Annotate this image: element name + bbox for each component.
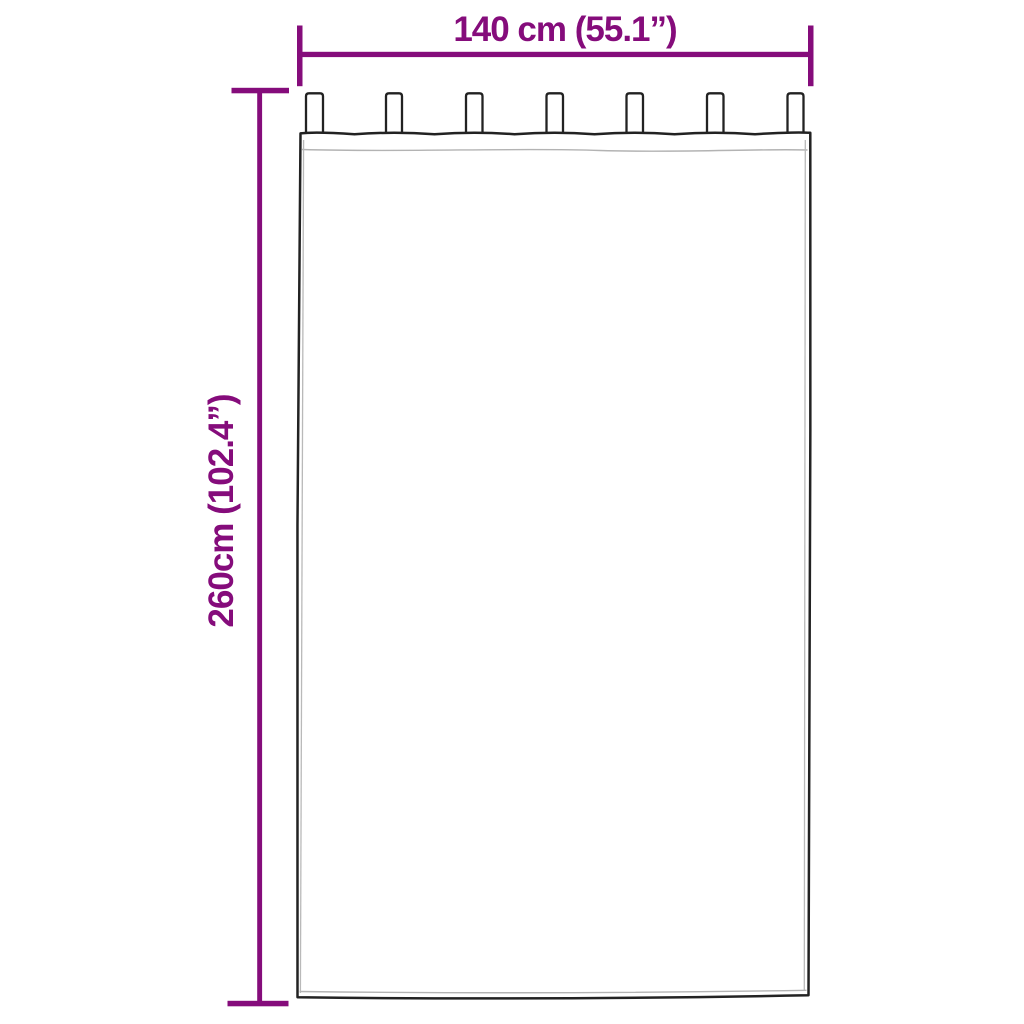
svg-text:260cm (102.4”): 260cm (102.4”) xyxy=(202,394,241,627)
svg-text:140 cm (55.1”): 140 cm (55.1”) xyxy=(453,10,676,49)
